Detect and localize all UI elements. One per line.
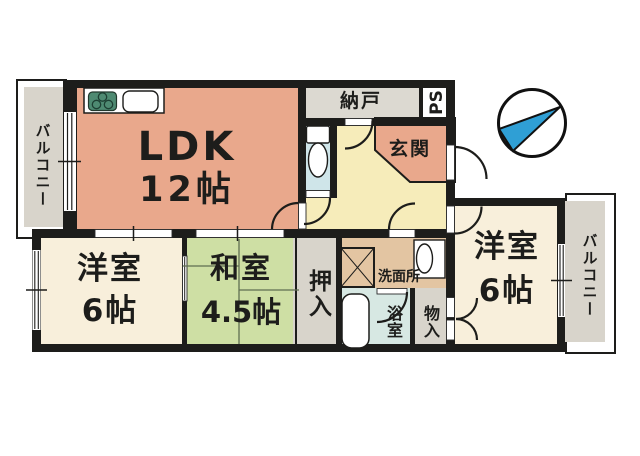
ps-label: PS <box>419 81 455 123</box>
kitchen-sink-icon <box>123 91 158 112</box>
yoshitsu-left-size: 6帖 <box>40 292 180 330</box>
floor-plan-canvas: バルコニー LDK 12帖 納戸 PS 玄関 洋室 6帖 和室 4.5帖 押入 … <box>0 0 640 456</box>
plan-details <box>0 0 640 456</box>
north-arrow-icon <box>499 90 566 157</box>
genkan-label: 玄関 <box>374 137 446 161</box>
washitsu-label: 和室 <box>186 251 296 285</box>
mononyu-label: 物入 <box>419 296 441 348</box>
washitsu-size: 4.5帖 <box>182 293 300 331</box>
yoshitsu-right-size: 6帖 <box>456 272 558 310</box>
yokushitsu-label: 浴室 <box>382 294 404 350</box>
yoshitsu-left-label: 洋室 <box>40 250 180 288</box>
yoshitsu-right-label: 洋室 <box>456 229 558 265</box>
balcony-right-label: バルコニー <box>577 210 601 340</box>
ldk-size-label: 12帖 <box>77 170 297 210</box>
toilet-icon <box>307 126 330 177</box>
bathtub-icon <box>342 294 369 348</box>
ldk-label: LDK <box>77 125 297 169</box>
oshiire-label: 押入 <box>303 248 331 340</box>
nando-label: 納戸 <box>298 88 424 114</box>
balcony-left-label: バルコニー <box>29 100 55 230</box>
stove-burners-icon <box>89 92 117 111</box>
senmenjo-label: 洗面所 <box>368 268 430 286</box>
